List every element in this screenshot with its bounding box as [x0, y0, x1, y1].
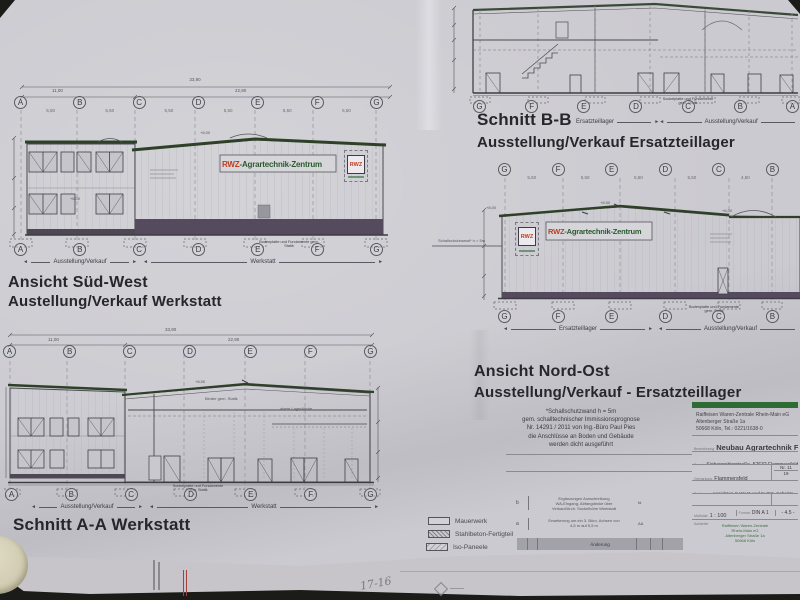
rwz-badge-text: RWZ: [518, 227, 536, 246]
dim-label: 5,50: [258, 108, 317, 113]
plan-sheet: 33,90 11,00 22,90 ABCDEFG 5,505,505,505,…: [0, 0, 800, 568]
grid-bubble: C: [682, 100, 695, 113]
grid-bubble: G: [364, 488, 377, 501]
project-name: Neubau Agrartechnik Flammersfeld: [716, 443, 798, 451]
grid-row-top: ABCDEFG: [3, 345, 377, 358]
grid-bubble: D: [629, 100, 642, 113]
grid-bubble: F: [552, 310, 565, 323]
grid-row-bottom: ABCDEFG: [5, 488, 377, 501]
level-label: +8,00: [486, 205, 496, 210]
project-row: BezeichnungNeubau Agrartechnik Flammersf…: [692, 435, 798, 451]
grid-bubble: D: [659, 310, 672, 323]
dim-label: 5,50: [317, 108, 376, 113]
grid-bubble: E: [577, 100, 590, 113]
legend-swatch: [426, 543, 448, 551]
grid-bubble: E: [251, 243, 264, 256]
note-line: Nr. 14291 / 2011 von Ing.-Büro Paul Pies: [512, 424, 650, 432]
revision-index: a: [516, 521, 519, 527]
span-label-left: ◄Ausstellung/Verkauf►: [30, 504, 144, 510]
level-label: +6,00: [70, 196, 80, 201]
grid-bubble: C: [125, 488, 138, 501]
band-divider: [650, 538, 651, 550]
dim-label: 5,50: [612, 175, 665, 180]
schnitt-bb-title: Schnitt B-B: [477, 110, 572, 130]
span-label-left: ◄Ausstellung/Verkauf►: [22, 259, 138, 265]
schnitt-aa-title: Schnitt A-A Werkstatt: [13, 515, 190, 535]
level-label: +6,00: [722, 208, 732, 213]
grid-row-bottom: GFEDCB: [498, 310, 779, 323]
dim-right: 22,90: [235, 88, 246, 93]
band-divider: [527, 538, 528, 550]
flur-cell: Nr. 11 19: [771, 465, 798, 480]
title-block: Raiffeisen Waren-Zentrale Rhein-Main eG …: [692, 398, 798, 546]
grid-bubble: G: [370, 243, 383, 256]
dim-label: 4,50: [719, 175, 772, 180]
note-line: gem. schalltechnischer Immissionsprognos…: [512, 416, 650, 424]
legend-item-mauerwerk: Mauerwerk: [428, 517, 487, 525]
format-cell: FormatDIN A 1: [736, 510, 775, 516]
sued-west-subtitle: Austellung/Verkauf Werkstatt: [8, 293, 222, 310]
under-sheet-rule: [400, 571, 800, 572]
dim-label: 5,50: [21, 108, 80, 113]
grid-bubble: C: [712, 310, 725, 323]
architect-address: Raiffeisen Waren-Zentrale Rhein-Main eG …: [694, 524, 796, 543]
grid-bubble: G: [498, 310, 511, 323]
grid-bubble: B: [734, 100, 747, 113]
span-label-right: ◄Werkstatt►: [148, 504, 380, 510]
grid-bubble: E: [605, 310, 618, 323]
legend-item-stahlbeton: Stahlbeton-Fertigteil: [428, 530, 513, 538]
sound-wall-label: Schallschutzwand* h = 5m: [438, 238, 485, 243]
grid-bubble: F: [311, 243, 324, 256]
revision-header-band: Änderung: [517, 538, 683, 550]
rwz-badge: RWZ: [515, 222, 539, 256]
rwz-badge: RWZ: [344, 150, 368, 182]
grid-bubble: B: [766, 310, 779, 323]
grid-bubble: B: [63, 345, 76, 358]
revision-header-label: Änderung: [590, 542, 610, 547]
dim-left: 11,00: [48, 337, 59, 342]
revision-row-b: Ergänzungen Ausschreibung WA-Eingang, Ab…: [536, 496, 632, 511]
span-label-left: ◄Ersatzteillager►: [502, 326, 654, 332]
rwz-sign: RWZ-Agrartechnik-Zentrum: [548, 227, 641, 236]
photo-of-architectural-plan: 33,90 11,00 22,90 ABCDEFG 5,505,505,505,…: [0, 0, 800, 600]
badge-green-line: [519, 250, 535, 252]
row-label: Aufsteller: [694, 522, 709, 526]
phase-row: PlanungsartAusschreibung: [692, 493, 798, 505]
grid-bubble: F: [304, 488, 317, 501]
row-label: Maßstab: [694, 514, 708, 518]
schnitt-bb-section-drawing: [430, 0, 800, 104]
rwz-sign-red: RWZ: [548, 227, 564, 236]
under-sheet-mark: [153, 560, 155, 590]
drawing-row: ZeichnungAnsichten S-West und N-Ost, Sch…: [692, 480, 798, 493]
gap-dims: 5,505,505,505,504,50: [505, 175, 772, 180]
rwz-sign-red: RWZ: [222, 160, 239, 169]
badge-green-line: [348, 176, 364, 178]
level-label: +8,50: [600, 200, 610, 205]
frame-line: [506, 471, 692, 472]
grid-bubble: D: [183, 345, 196, 358]
dim-label: 5,50: [80, 108, 139, 113]
level-label: +8,00: [200, 130, 210, 135]
note-line: werden dicht ausgeführt: [512, 441, 650, 449]
dim-right: 22,90: [228, 337, 239, 342]
dim-label: 5,50: [199, 108, 258, 113]
dim-label: 5,50: [505, 175, 558, 180]
span-label-right: ◄Werkstatt►: [142, 259, 384, 265]
client-line: 50668 Köln, Tel.: 0221/1638-0: [696, 426, 798, 433]
scale-value: 1 : 100: [710, 513, 727, 519]
grid-bubble: E: [244, 345, 257, 358]
rwz-sign: RWZ-Agrartechnik-Zentrum: [222, 160, 322, 169]
grid-bubble: E: [244, 488, 257, 501]
red-border-line: [183, 570, 184, 596]
grid-row-bottom: ABCDEFG: [14, 243, 383, 256]
grid-bubble: C: [123, 345, 136, 358]
level-label: +8,50: [195, 379, 205, 384]
legend-label: Mauerwerk: [455, 518, 487, 525]
dim-total: 33,90: [175, 77, 215, 82]
grid-bubble: A: [14, 243, 27, 256]
gap-dims: 5,505,505,505,505,505,50: [21, 108, 376, 113]
grid-bubble: F: [304, 345, 317, 358]
format-value: DIN A 1: [752, 510, 769, 516]
revision-index: b: [516, 500, 519, 506]
row-label: Format: [739, 511, 750, 515]
revision-by: fd: [638, 500, 641, 505]
dim-label: 5,50: [139, 108, 198, 113]
nord-ost-elevation-drawing: [432, 160, 800, 372]
grid-bubble: A: [786, 100, 799, 113]
revision-by: AA: [638, 521, 643, 526]
stamp-text-mark: [450, 588, 464, 589]
dim-label: 5,50: [558, 175, 611, 180]
client-line: Altenberger Straße 1a: [696, 419, 798, 426]
site-row: BauortSiebengebirgstraße, 57632 Flammers…: [692, 451, 798, 464]
note-line: *Schallschutzwand h = 5m: [512, 408, 650, 416]
rwz-badge-text: RWZ: [347, 155, 365, 174]
legend-swatch: [428, 517, 450, 525]
grid-bubble: A: [5, 488, 18, 501]
client-address: Raiffeisen Waren-Zentrale Rhein-Main eG …: [692, 408, 798, 435]
truss-note: Binder gem. Statik: [205, 396, 238, 401]
band-divider: [537, 538, 538, 550]
grid-bubble: A: [3, 345, 16, 358]
frame-line: [506, 454, 692, 455]
legend-item-iso-paneele: Iso-Paneele: [426, 543, 488, 551]
span-labels: Ersatzteillager►◄Ausstellung/Verkauf: [575, 119, 797, 125]
dim-total: 33,90: [165, 327, 176, 332]
dim-label: 5,50: [665, 175, 718, 180]
legend-label: Stahlbeton-Fertigteil: [455, 531, 513, 538]
schnitt-bb-subtitle: Ausstellung/Verkauf Ersatzteillager: [477, 134, 735, 151]
rwz-sign-green: -Agrartechnik-Zentrum: [239, 160, 321, 169]
band-divider: [636, 538, 637, 550]
dim-left: 11,00: [52, 88, 63, 93]
grid-bubble: B: [65, 488, 78, 501]
sound-protection-note: *Schallschutzwand h = 5m gem. schalltech…: [512, 408, 650, 449]
legend-swatch: [428, 530, 450, 538]
grid-bubble: C: [133, 243, 146, 256]
grid-bubble: D: [184, 488, 197, 501]
legend-label: Iso-Paneele: [453, 544, 488, 551]
revision-divider: [528, 496, 529, 510]
empty-cell: [771, 494, 798, 505]
band-divider: [662, 538, 663, 550]
nord-ost-title: Ansicht Nord-Ost: [474, 363, 610, 381]
note-line: die Anschlüsse an Boden und Gebäude: [512, 433, 650, 441]
rwz-sign-green: -Agrartechnik-Zentrum: [564, 227, 641, 236]
revision-divider: [528, 518, 529, 530]
red-border-line: [186, 570, 187, 596]
grid-bubble: B: [73, 243, 86, 256]
span-label-right: ◄Ausstellung/Verkauf: [657, 326, 797, 332]
grid-bubble: G: [364, 345, 377, 358]
under-sheet-mark: [158, 562, 160, 590]
plan-number-cell: - 4.5 -: [775, 510, 798, 516]
revision-row-a: Erweiterung um ein 3. Büro, Achsen von 4…: [536, 518, 632, 528]
sued-west-title: Ansicht Süd-West: [8, 274, 148, 292]
grid-bubble: D: [192, 243, 205, 256]
architect-row: Aufsteller Raiffeisen Waren-Zentrale Rhe…: [692, 519, 798, 546]
mezzanine-note: obere Lagerfläche: [280, 406, 312, 411]
client-line: Raiffeisen Waren-Zentrale Rhein-Main eG: [696, 412, 798, 419]
plan-number: - 4.5 -: [781, 510, 794, 516]
district-row: GemarkungFlammersfeld Nr. 11 19: [692, 464, 798, 480]
scale-row: Maßstab1 : 100 FormatDIN A 1 - 4.5 -: [692, 505, 798, 519]
